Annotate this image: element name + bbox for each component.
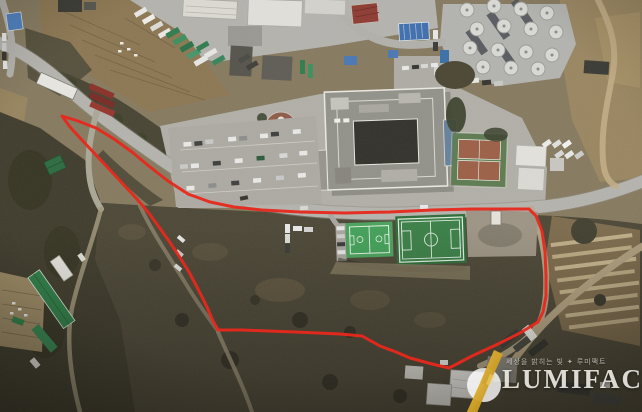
aerial-photo: 세상을 밝히는 빛 ✦ 루미팩트 LUMIFACT: [0, 0, 642, 412]
satellite-image: [0, 0, 642, 412]
bottom-shade: [0, 0, 642, 412]
